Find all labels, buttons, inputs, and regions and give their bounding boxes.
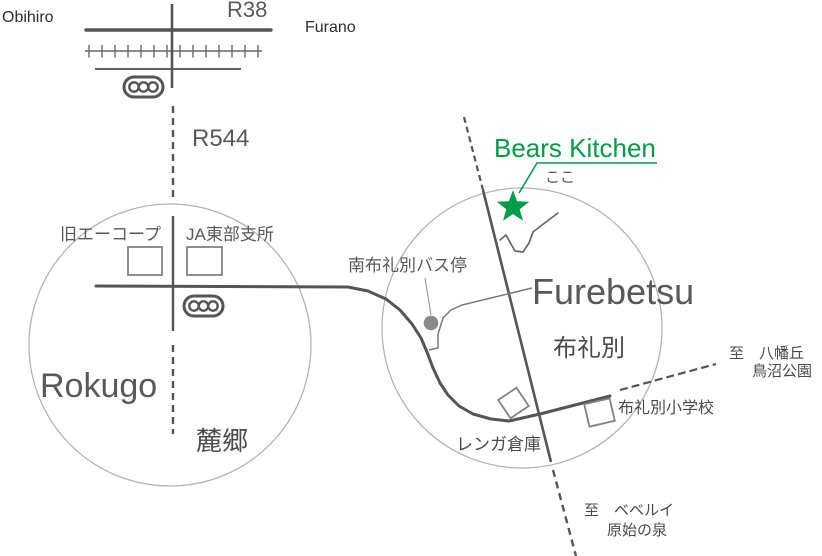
traffic-light-icon: [184, 296, 223, 316]
rokugo-jp-label: 麓郷: [196, 426, 248, 456]
ja-tobu-building: [187, 247, 222, 275]
obihiro-label: Obihiro: [2, 9, 54, 26]
bus-stop-dot: [424, 316, 439, 331]
furebetsu-road-solid: [483, 190, 551, 462]
to-beberui-label: 至 ベベルイ: [584, 502, 674, 519]
furebetsu-district: Furebetsu 布礼別 レンガ倉庫 布礼別小学校: [456, 271, 714, 454]
furebetsu-road-dashed-top: [464, 117, 483, 190]
route544-label: R544: [192, 125, 249, 152]
school-building: [584, 398, 615, 426]
route38-label: R38: [227, 0, 267, 22]
hachimangaoka-road-dashed: [620, 364, 716, 390]
old-acoop-label: 旧エーコープ: [60, 225, 161, 244]
furebetsu-en-label: Furebetsu: [532, 271, 694, 312]
rokugo-area-circle: [29, 204, 311, 486]
r544-road: R544: [173, 106, 249, 434]
direction-labels: 至 八幡丘 鳥沼公園 至 ベベルイ 原始の泉: [584, 345, 812, 539]
primeval-spring-label: 原始の泉: [607, 522, 667, 539]
old-acoop-building: [128, 247, 162, 275]
ja-tobu-label: JA東部支所: [186, 225, 274, 244]
bus-stop-leader-line: [425, 278, 431, 315]
furebetsu-road-dashed-bottom: [553, 470, 576, 556]
bus-stop-group: 南布礼別バス停: [348, 256, 532, 350]
traffic-light-icon: [124, 77, 163, 97]
bears-kitchen-label: Bears Kitchen: [494, 133, 656, 163]
rokugo-en-label: Rokugo: [40, 367, 157, 405]
brick-warehouse-label: レンガ倉庫: [456, 435, 541, 454]
torinuma-park-label: 鳥沼公園: [752, 362, 812, 380]
to-hachimangaoka-label: 至 八幡丘: [729, 345, 804, 362]
r38-junction: Obihiro Furano R38: [2, 0, 356, 97]
bus-pullout-road: [429, 334, 438, 350]
bus-stop-label: 南布礼別バス停: [348, 256, 467, 275]
rokugo-district: 旧エーコープ JA東部支所 Rokugo 麓郷: [40, 225, 274, 456]
brick-warehouse-building: [498, 388, 529, 419]
here-label: ここ: [545, 169, 575, 186]
access-map: Obihiro Furano R38 R544 旧エーコープ JA東部支所 Ro…: [0, 0, 822, 556]
destination-group: Bears Kitchen ここ: [494, 133, 657, 221]
furano-label: Furano: [305, 19, 356, 36]
school-label: 布礼別小学校: [618, 399, 714, 417]
furebetsu-area-circle: [382, 188, 662, 468]
destination-star-icon: [497, 190, 529, 221]
stream-line: [500, 213, 558, 252]
furebetsu-jp-label: 布礼別: [553, 335, 625, 362]
